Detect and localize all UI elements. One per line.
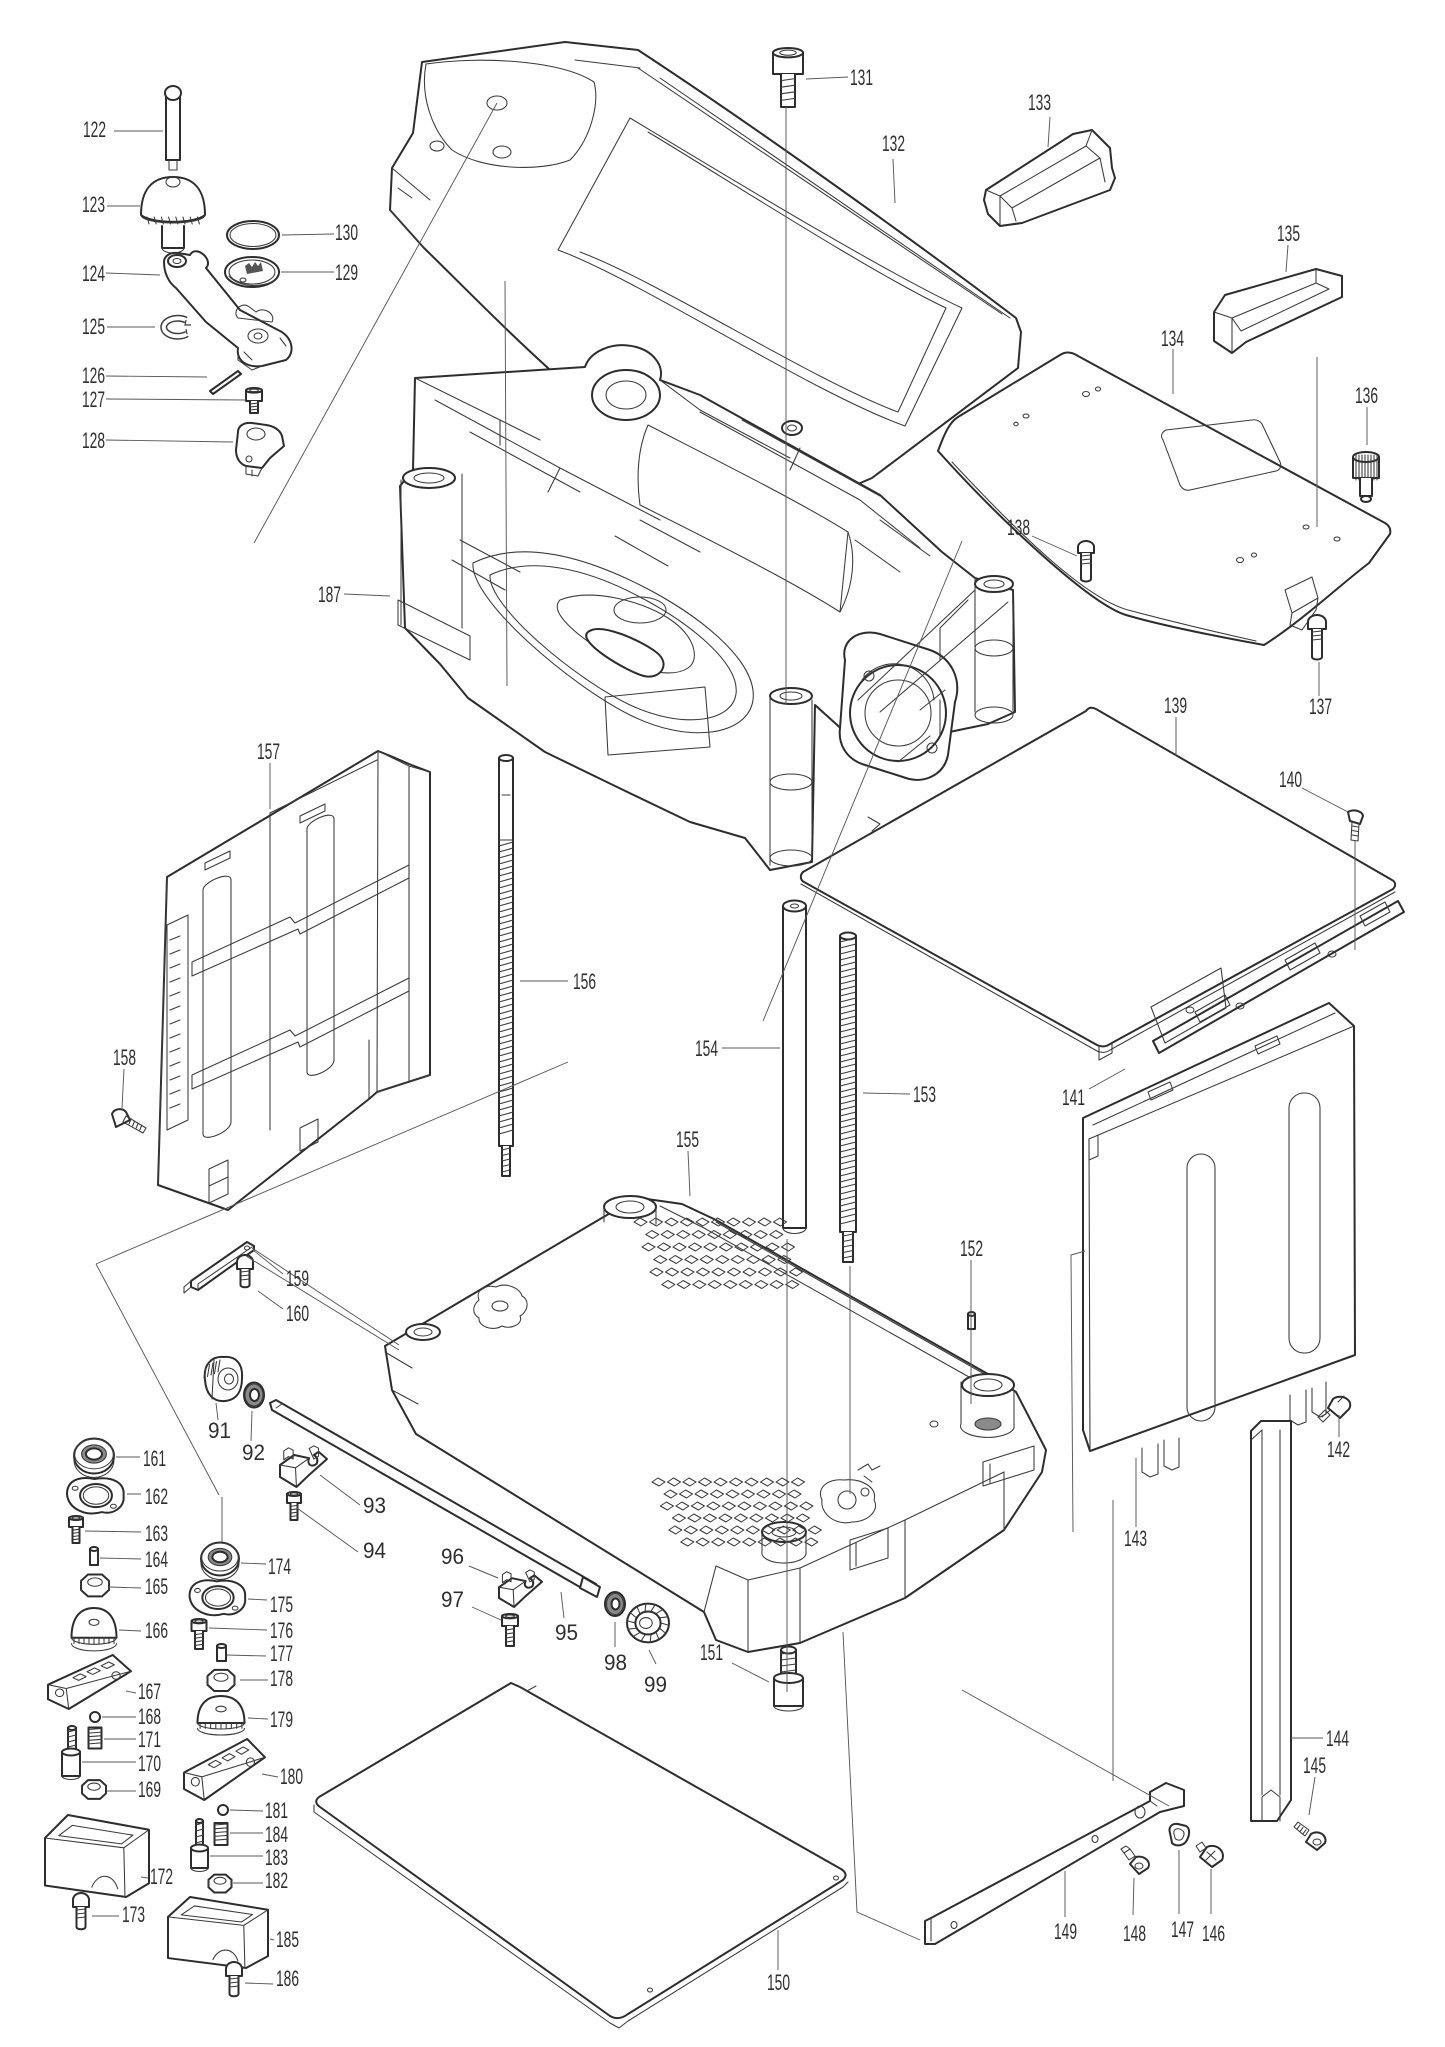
svg-text:133: 133 <box>1028 90 1051 115</box>
svg-text:165: 165 <box>145 1574 168 1599</box>
svg-text:163: 163 <box>145 1521 168 1546</box>
svg-text:130: 130 <box>335 220 358 245</box>
svg-text:93: 93 <box>363 1493 386 1518</box>
svg-text:138: 138 <box>1007 515 1030 540</box>
svg-text:95: 95 <box>555 1620 578 1645</box>
svg-text:145: 145 <box>1303 1753 1326 1778</box>
svg-text:180: 180 <box>280 1764 303 1789</box>
svg-text:186: 186 <box>276 1966 299 1991</box>
svg-text:153: 153 <box>913 1082 936 1107</box>
svg-text:148: 148 <box>1123 1921 1146 1946</box>
svg-text:152: 152 <box>960 1236 983 1261</box>
svg-text:169: 169 <box>138 1777 161 1802</box>
svg-text:171: 171 <box>138 1727 161 1752</box>
svg-text:147: 147 <box>1171 1917 1194 1942</box>
svg-text:97: 97 <box>441 1587 464 1612</box>
svg-text:125: 125 <box>82 314 105 339</box>
svg-text:124: 124 <box>82 261 105 286</box>
svg-text:155: 155 <box>676 1127 699 1152</box>
svg-text:174: 174 <box>268 1554 291 1579</box>
svg-text:167: 167 <box>138 1679 161 1704</box>
svg-text:96: 96 <box>441 1544 464 1569</box>
svg-text:164: 164 <box>145 1547 168 1572</box>
svg-text:91: 91 <box>208 1418 231 1443</box>
svg-text:173: 173 <box>122 1902 145 1927</box>
svg-text:129: 129 <box>335 260 358 285</box>
svg-text:135: 135 <box>1277 221 1300 246</box>
svg-text:179: 179 <box>270 1707 293 1732</box>
svg-text:177: 177 <box>270 1641 293 1666</box>
svg-text:159: 159 <box>286 1266 309 1291</box>
svg-text:157: 157 <box>257 739 280 764</box>
svg-text:137: 137 <box>1309 694 1332 719</box>
svg-text:99: 99 <box>644 1672 667 1697</box>
svg-text:185: 185 <box>276 1927 299 1952</box>
svg-text:126: 126 <box>82 363 105 388</box>
svg-text:92: 92 <box>242 1440 265 1465</box>
svg-text:187: 187 <box>318 582 341 607</box>
svg-text:142: 142 <box>1327 1437 1350 1462</box>
svg-text:132: 132 <box>882 131 905 156</box>
svg-text:140: 140 <box>1279 767 1302 792</box>
svg-text:123: 123 <box>82 192 105 217</box>
svg-text:166: 166 <box>145 1618 168 1643</box>
svg-text:136: 136 <box>1355 383 1378 408</box>
svg-text:122: 122 <box>83 117 106 142</box>
svg-text:160: 160 <box>286 1301 309 1326</box>
svg-text:154: 154 <box>695 1036 718 1061</box>
svg-text:181: 181 <box>265 1798 288 1823</box>
svg-text:156: 156 <box>573 969 596 994</box>
svg-text:139: 139 <box>1164 693 1187 718</box>
svg-text:175: 175 <box>270 1592 293 1617</box>
svg-text:144: 144 <box>1326 1726 1349 1751</box>
svg-text:184: 184 <box>265 1822 288 1847</box>
svg-text:170: 170 <box>138 1751 161 1776</box>
svg-text:172: 172 <box>150 1864 173 1889</box>
svg-text:168: 168 <box>138 1704 161 1729</box>
svg-text:150: 150 <box>767 1970 790 1995</box>
svg-text:143: 143 <box>1124 1526 1147 1551</box>
svg-text:146: 146 <box>1202 1921 1225 1946</box>
svg-text:176: 176 <box>270 1618 293 1643</box>
svg-text:141: 141 <box>1062 1085 1085 1110</box>
svg-text:158: 158 <box>113 1045 136 1070</box>
svg-text:128: 128 <box>82 428 105 453</box>
svg-text:127: 127 <box>82 387 105 412</box>
svg-text:98: 98 <box>604 1650 627 1675</box>
svg-text:162: 162 <box>145 1484 168 1509</box>
svg-text:183: 183 <box>265 1845 288 1870</box>
svg-text:151: 151 <box>700 1640 723 1665</box>
svg-text:182: 182 <box>265 1868 288 1893</box>
svg-text:131: 131 <box>850 65 873 90</box>
svg-text:94: 94 <box>363 1538 386 1563</box>
svg-text:161: 161 <box>143 1446 166 1471</box>
svg-text:178: 178 <box>270 1666 293 1691</box>
svg-text:149: 149 <box>1054 1919 1077 1944</box>
svg-text:134: 134 <box>1161 326 1184 351</box>
